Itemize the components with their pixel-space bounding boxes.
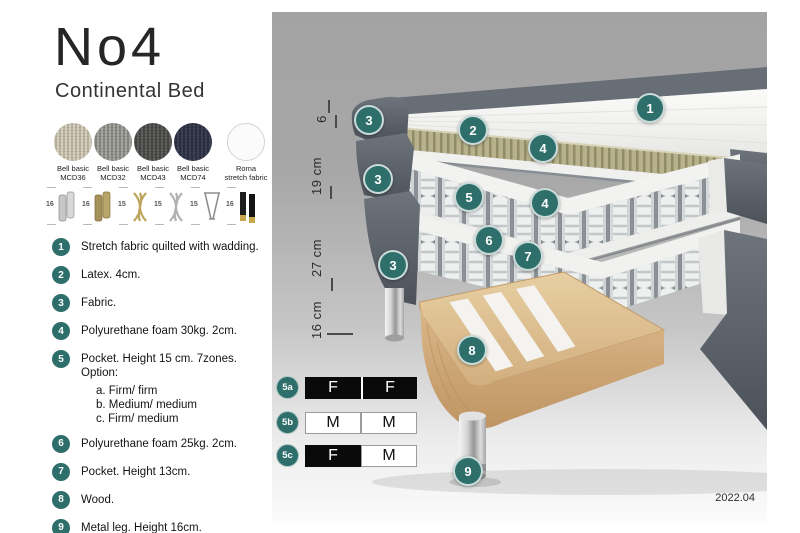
callout-badge-1: 1 <box>635 93 665 123</box>
brass-cylinder-leg-icon <box>93 189 115 225</box>
product-subtitle: Continental Bed <box>55 80 205 103</box>
firmness-badge-5c: 5c <box>276 444 299 467</box>
spec-list: 1 Stretch fabric quilted with wadding. 2… <box>52 238 270 533</box>
spec-item-2: 2 Latex. 4cm. <box>52 266 270 284</box>
fabric-swatch-mcd32: Bell basicMCD32 <box>93 123 133 183</box>
fabric-swatch-roma: Romastretch fabric <box>222 123 270 183</box>
gold-twisted-leg-icon <box>129 189 151 225</box>
leg-option-black-brass: 16 <box>226 184 262 230</box>
product-sheet: No4 Continental Bed Bell basicMCD36 Bell… <box>0 0 800 533</box>
fabric-swatches: Bell basicMCD36 Bell basicMCD32 Bell bas… <box>53 123 270 183</box>
fabric-swatch-circle <box>54 123 92 161</box>
fabric-swatch-circle <box>134 123 172 161</box>
leg-option-hairpin: 15 <box>190 184 226 230</box>
fabric-swatch-circle <box>174 123 212 161</box>
spec-badge-5: 5 <box>52 350 70 368</box>
version-stamp: 2022.04 <box>715 492 755 504</box>
callout-badge-3-middle: 3 <box>363 164 393 194</box>
spec-item-5: 5 Pocket. Height 15 cm. 7zones. Option: <box>52 350 270 381</box>
callout-badge-3-bottom: 3 <box>378 250 408 280</box>
callout-badge-2: 2 <box>458 115 488 145</box>
leg-options: 16 16 15 15 <box>46 184 262 230</box>
spec-badge-6: 6 <box>52 435 70 453</box>
fabric-swatch-mcd74: Bell basicMCD74 <box>173 123 213 183</box>
callout-badge-5: 5 <box>454 182 484 212</box>
leg-option-silver-twisted: 15 <box>154 184 190 230</box>
spec-badge-4: 4 <box>52 322 70 340</box>
ruler-tick <box>327 333 353 335</box>
fabric-swatch-mcd36: Bell basicMCD36 <box>53 123 93 183</box>
callout-badge-3-top: 3 <box>354 105 384 135</box>
fabric-swatch-mcd43: Bell basicMCD43 <box>133 123 173 183</box>
fabric-swatch-circle <box>227 123 265 161</box>
spec-item-1: 1 Stretch fabric quilted with wadding. <box>52 238 270 256</box>
dimension-label-19cm: 19 cm <box>310 146 324 206</box>
firmness-bar-5a: F F <box>305 377 417 399</box>
leg-option-chrome-cylinder: 16 <box>46 184 82 230</box>
callout-badge-8: 8 <box>457 335 487 365</box>
firmness-badge-5a: 5a <box>276 376 299 399</box>
spec-item-9: 9 Metal leg. Height 16cm. <box>52 519 270 533</box>
spec-badge-2: 2 <box>52 266 70 284</box>
fabric-swatch-circle <box>94 123 132 161</box>
callout-badge-6: 6 <box>474 225 504 255</box>
dimension-label-27cm: 27 cm <box>310 228 324 288</box>
product-title: No4 <box>54 16 165 78</box>
callout-badge-4-lower: 4 <box>530 188 560 218</box>
cutaway-illustration-panel: 6 19 cm 27 cm 16 cm 1 2 3 3 3 4 4 5 6 7 … <box>272 12 767 521</box>
ruler-tick <box>331 278 333 291</box>
hairpin-leg-icon <box>201 189 223 225</box>
black-brass-leg-icon <box>237 189 259 225</box>
dimension-label-6: 6 <box>315 89 329 149</box>
spec-badge-9: 9 <box>52 519 70 533</box>
ruler-tick <box>328 100 330 113</box>
spec-badge-1: 1 <box>52 238 70 256</box>
spec-item-6: 6 Polyurethane foam 25kg. 2cm. <box>52 435 270 453</box>
firmness-bar-5c: F M <box>305 445 417 467</box>
spec-item-5-options: a. Firm/ firm b. Medium/ medium c. Firm/… <box>96 384 270 426</box>
left-column: No4 Continental Bed Bell basicMCD36 Bell… <box>0 0 272 533</box>
dimension-label-16cm: 16 cm <box>310 290 324 350</box>
silver-twisted-leg-icon <box>165 189 187 225</box>
chrome-cylinder-leg-icon <box>57 189 79 225</box>
ruler-tick <box>335 115 337 128</box>
callout-badge-7: 7 <box>513 241 543 271</box>
firmness-row-5a: 5a F F <box>276 376 417 399</box>
spec-item-7: 7 Pocket. Height 13cm. <box>52 463 270 481</box>
firmness-row-5b: 5b M M <box>276 411 417 434</box>
spec-badge-8: 8 <box>52 491 70 509</box>
callout-badge-9: 9 <box>453 456 483 486</box>
spec-item-8: 8 Wood. <box>52 491 270 509</box>
spec-badge-3: 3 <box>52 294 70 312</box>
spec-badge-7: 7 <box>52 463 70 481</box>
firmness-badge-5b: 5b <box>276 411 299 434</box>
firmness-bar-5b: M M <box>305 412 417 434</box>
spec-item-3: 3 Fabric. <box>52 294 270 312</box>
callout-badge-4-upper: 4 <box>528 133 558 163</box>
leg-option-gold-twisted: 15 <box>118 184 154 230</box>
spec-item-4: 4 Polyurethane foam 30kg. 2cm. <box>52 322 270 340</box>
ruler-tick <box>330 186 332 199</box>
leg-option-brass-cylinder: 16 <box>82 184 118 230</box>
firmness-row-5c: 5c F M <box>276 444 417 467</box>
